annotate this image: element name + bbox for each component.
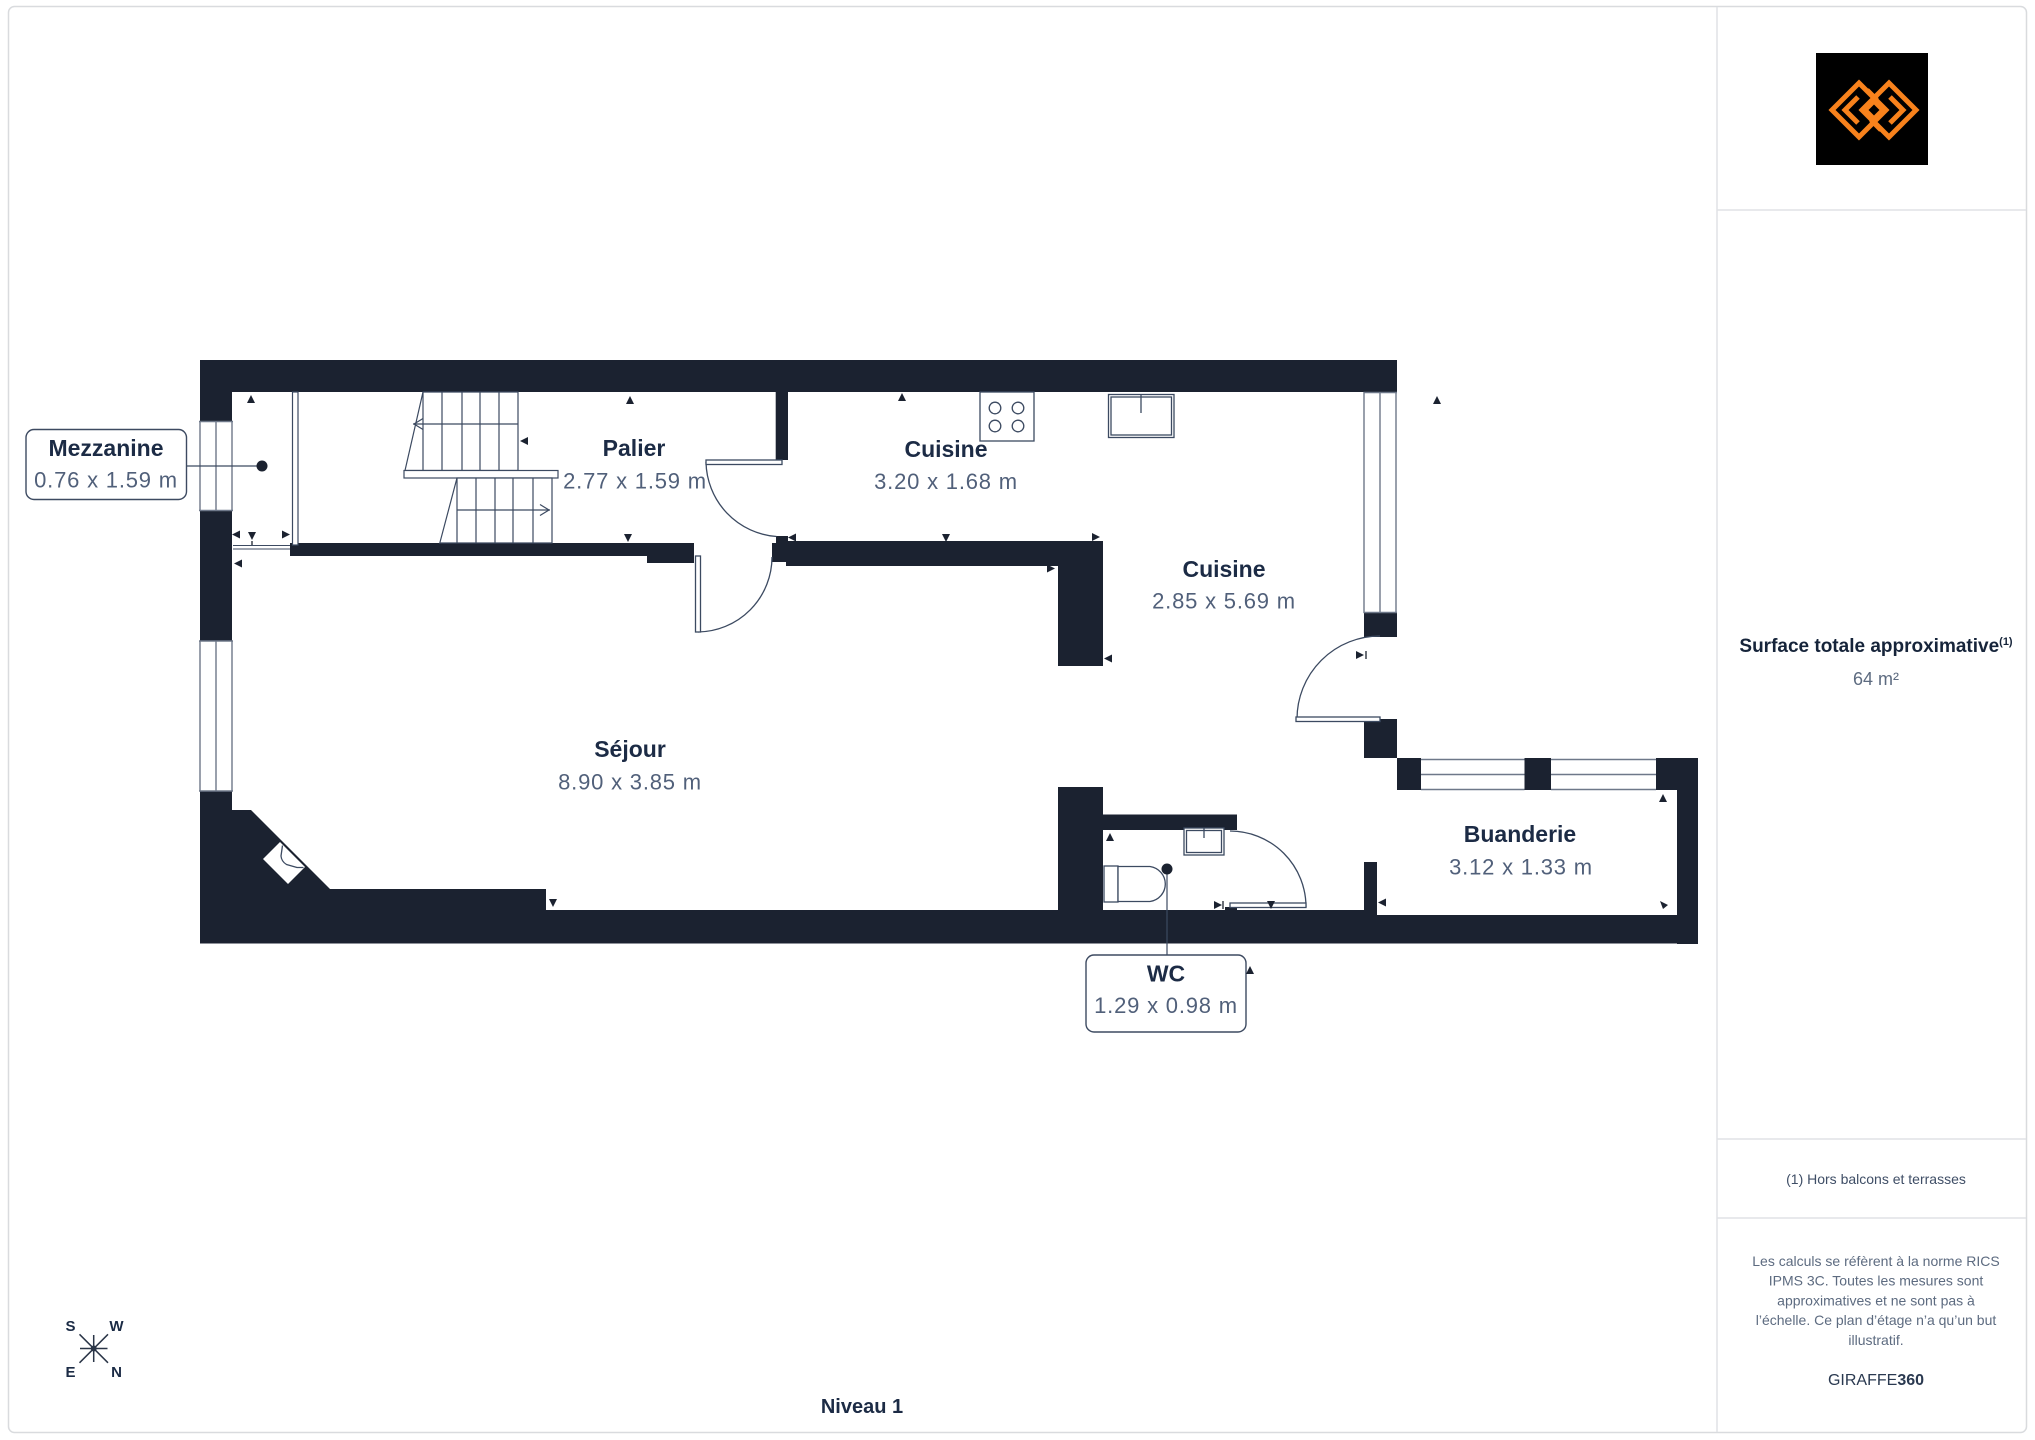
svg-text:0.76 x 1.59 m: 0.76 x 1.59 m xyxy=(34,468,178,493)
svg-text:Niveau 1: Niveau 1 xyxy=(821,1396,903,1418)
svg-text:Surface totale approximative(1: Surface totale approximative(1) xyxy=(1739,636,2013,657)
svg-text:Cuisine: Cuisine xyxy=(904,436,987,462)
svg-text:IPMS 3C. Toutes les mesures so: IPMS 3C. Toutes les mesures sont xyxy=(1769,1273,1984,1289)
svg-text:l’échelle. Ce plan d’étage n’a: l’échelle. Ce plan d’étage n’a qu’un but xyxy=(1756,1312,1997,1328)
svg-text:WC: WC xyxy=(1147,961,1185,987)
svg-text:N: N xyxy=(111,1364,122,1381)
svg-text:Buanderie: Buanderie xyxy=(1464,821,1576,847)
svg-text:3.12 x 1.33 m: 3.12 x 1.33 m xyxy=(1449,855,1593,880)
svg-text:2.77 x 1.59 m: 2.77 x 1.59 m xyxy=(563,469,707,494)
svg-text:8.90 x 3.85 m: 8.90 x 3.85 m xyxy=(558,770,702,795)
svg-text:Mezzanine: Mezzanine xyxy=(48,435,163,461)
svg-text:2.85 x 5.69 m: 2.85 x 5.69 m xyxy=(1152,589,1296,614)
svg-text:approximatives et ne sont pas: approximatives et ne sont pas à xyxy=(1777,1292,1975,1308)
svg-text:Séjour: Séjour xyxy=(594,736,666,762)
svg-text:1.29 x 0.98 m: 1.29 x 0.98 m xyxy=(1094,993,1238,1018)
svg-text:E: E xyxy=(65,1364,75,1381)
svg-text:3.20 x 1.68 m: 3.20 x 1.68 m xyxy=(874,469,1018,494)
svg-text:64 m²: 64 m² xyxy=(1853,669,1899,689)
svg-text:Cuisine: Cuisine xyxy=(1182,556,1265,582)
svg-text:S: S xyxy=(65,1318,75,1335)
svg-text:GIRAFFE360: GIRAFFE360 xyxy=(1828,1372,1924,1389)
svg-text:Palier: Palier xyxy=(603,435,666,461)
svg-text:(1) Hors balcons et terrasses: (1) Hors balcons et terrasses xyxy=(1786,1171,1966,1187)
svg-text:Les calculs se réfèrent à la n: Les calculs se réfèrent à la norme RICS xyxy=(1752,1253,1999,1269)
svg-text:W: W xyxy=(109,1318,124,1335)
svg-text:illustratif.: illustratif. xyxy=(1848,1332,1903,1348)
